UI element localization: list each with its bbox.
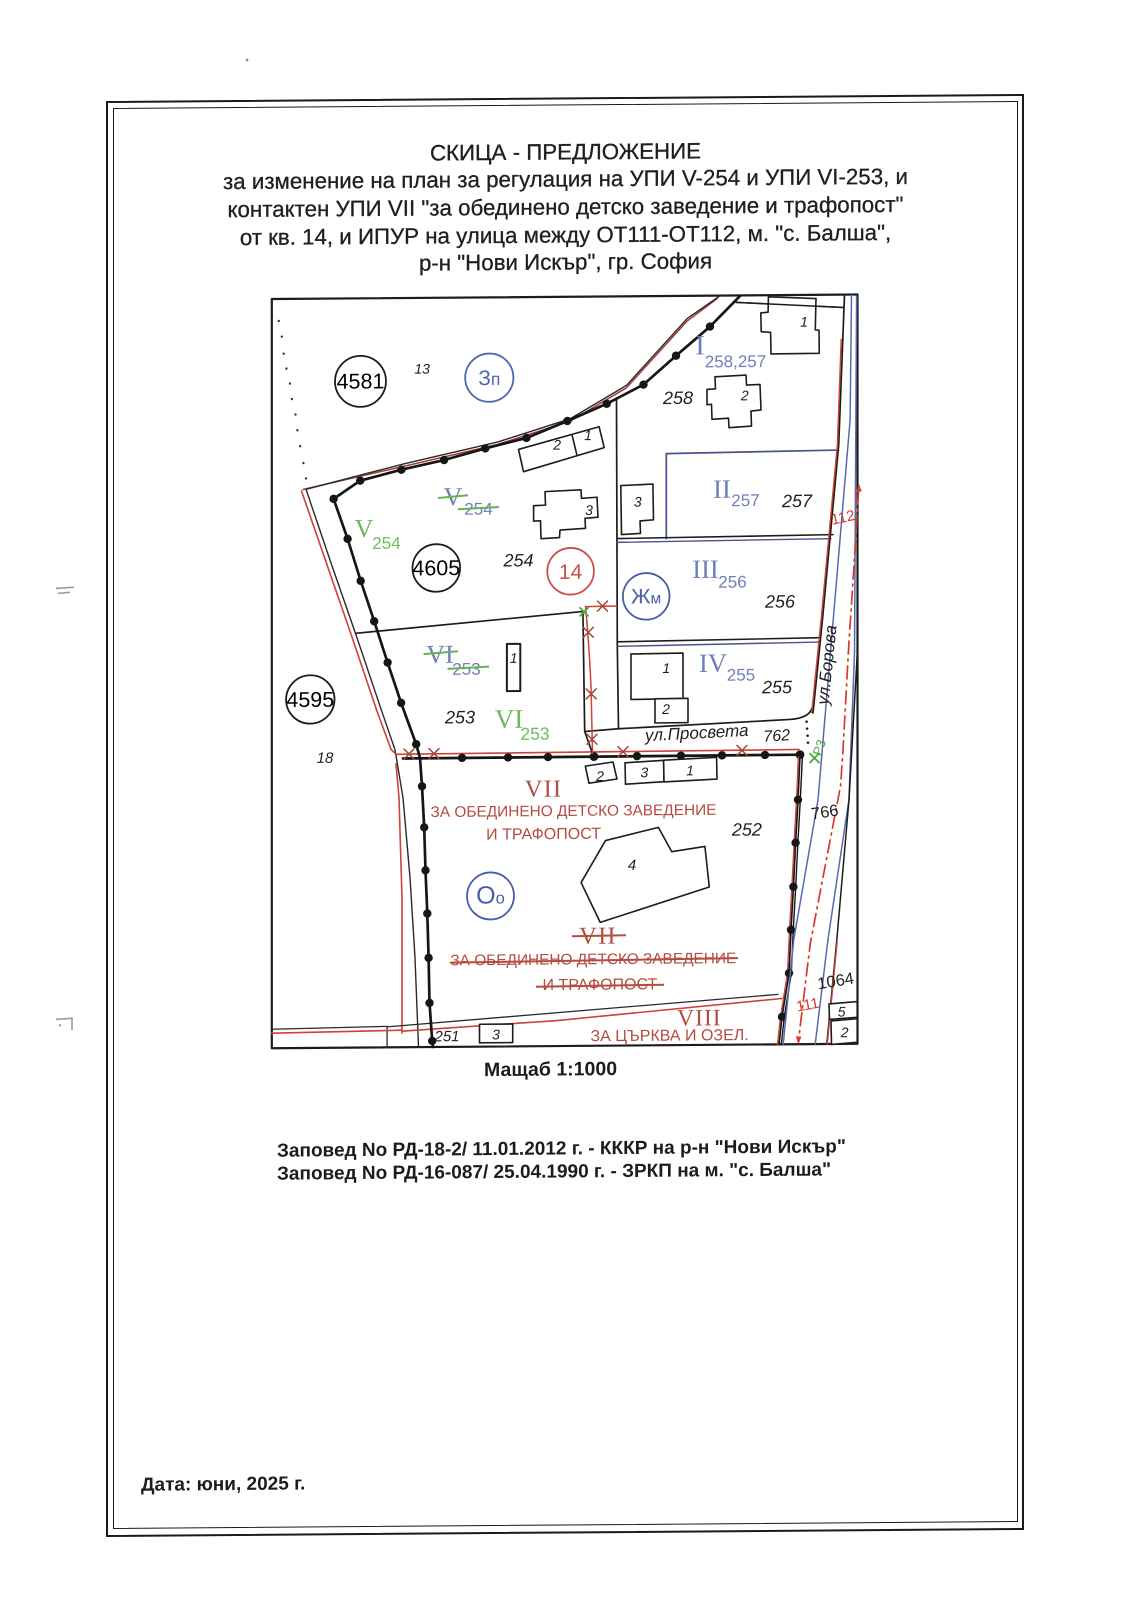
svg-text:13: 13 (414, 361, 430, 377)
svg-text:ул.Борова: ул.Борова (813, 624, 840, 706)
svg-text:1: 1 (510, 650, 518, 666)
svg-text:258: 258 (662, 388, 693, 408)
svg-text:Р3: Р3 (810, 737, 830, 757)
svg-text:1064: 1064 (816, 970, 855, 994)
svg-text:257: 257 (731, 491, 759, 510)
svg-text:2: 2 (740, 387, 749, 403)
svg-text:18: 18 (317, 750, 334, 767)
svg-text:VII: VII (525, 776, 563, 803)
svg-text:254: 254 (372, 534, 400, 553)
svg-text:112: 112 (830, 507, 857, 529)
svg-text:255: 255 (727, 666, 755, 685)
svg-text:253: 253 (444, 707, 475, 727)
svg-text:251: 251 (433, 1028, 459, 1045)
svg-text:4: 4 (628, 857, 636, 874)
svg-text:258,257: 258,257 (705, 352, 766, 371)
svg-text:2: 2 (595, 768, 604, 784)
svg-text:253: 253 (520, 724, 549, 744)
svg-text:1: 1 (584, 427, 592, 443)
svg-text:ул.Просвета: ул.Просвета (644, 721, 749, 745)
svg-text:3: 3 (641, 764, 649, 780)
svg-text:Жм: Жм (631, 585, 661, 608)
svg-text:766: 766 (810, 802, 840, 824)
svg-text:Оо: Оо (476, 881, 505, 909)
svg-text:1: 1 (686, 762, 694, 778)
svg-text:VI: VI (495, 704, 523, 734)
svg-text:111: 111 (795, 995, 820, 1016)
svg-text:1: 1 (800, 314, 808, 330)
svg-text:14: 14 (559, 561, 583, 584)
svg-text:4581: 4581 (337, 369, 385, 393)
svg-text:IV: IV (699, 648, 727, 678)
svg-text:257: 257 (781, 491, 813, 511)
svg-text:255: 255 (761, 677, 793, 697)
svg-text:2: 2 (840, 1024, 849, 1040)
svg-text:ЗА ОБЕДИНЕНО ДЕТСКО ЗАВЕДЕНИЕ: ЗА ОБЕДИНЕНО ДЕТСКО ЗАВЕДЕНИЕ (431, 802, 717, 821)
svg-text:I: I (695, 330, 704, 361)
svg-text:II: II (713, 474, 731, 504)
svg-text:И ТРАФОПОСТ: И ТРАФОПОСТ (486, 826, 601, 844)
svg-text:3: 3 (492, 1026, 500, 1042)
svg-text:III: III (692, 554, 718, 584)
svg-text:ЗА ЦЪРКВА И ОЗЕЛ.: ЗА ЦЪРКВА И ОЗЕЛ. (590, 1027, 748, 1045)
svg-text:4595: 4595 (286, 688, 334, 712)
svg-text:4605: 4605 (412, 556, 460, 580)
svg-text:2: 2 (552, 437, 561, 453)
svg-text:Зп: Зп (478, 367, 500, 390)
svg-text:254: 254 (502, 550, 533, 570)
svg-text:5: 5 (838, 1003, 846, 1019)
svg-text:3: 3 (585, 502, 593, 518)
svg-text:1: 1 (662, 660, 670, 676)
svg-text:252: 252 (731, 820, 762, 840)
svg-text:2: 2 (661, 701, 670, 717)
svg-text:3: 3 (634, 494, 642, 510)
svg-text:256: 256 (718, 573, 746, 592)
svg-text:762: 762 (763, 727, 791, 746)
svg-text:256: 256 (764, 592, 796, 612)
svg-text:V: V (355, 514, 374, 543)
